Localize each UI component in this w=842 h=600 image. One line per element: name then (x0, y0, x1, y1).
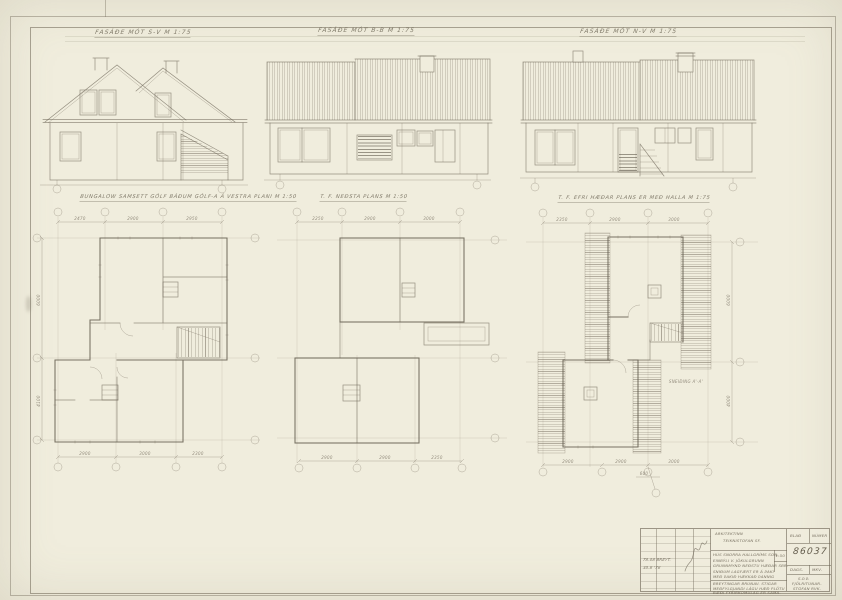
datum-markers (53, 180, 226, 193)
roof (265, 59, 492, 123)
fold-mark (105, 0, 106, 17)
footer-line: STOFAN RVK. (793, 586, 821, 591)
section-annotation: SNEIÐING A'-A' (669, 379, 703, 384)
grid-bubbles (293, 208, 499, 472)
dim-label: 2900 (79, 451, 91, 456)
elevation-sw-drawing (38, 52, 250, 197)
elevation-title-sw: FASÁÐE MÓT S-V M 1:75 (94, 29, 192, 38)
plan-title-foundation: T. F. NEÐSTA PLANS M 1:50 (319, 194, 408, 202)
interior-walls (55, 238, 227, 442)
note-line: BÆÐI FYRIRKOMULAG ER SAMA. (713, 590, 781, 595)
dim-label: 3000 (668, 459, 680, 464)
dim-label: 2900 (364, 216, 376, 221)
dim-label: 2900 (127, 216, 139, 221)
title-block-number-panel: BLAÐ NÚMER 86037 DAGS. MKV. S.Þ.Þ. FJÖLR… (787, 529, 831, 591)
description-line: HÚS SNORRA HALLGRÍMS SON. (713, 552, 779, 557)
dim-label: 2900 (379, 455, 391, 460)
stair (650, 323, 683, 342)
description-line: SNIÐUM LAGFÆRT ER Á ÞAKI (713, 569, 774, 574)
dim-label: 6000 (726, 294, 731, 306)
dim-label: 3000 (423, 216, 435, 221)
exterior-stair (181, 130, 228, 180)
chimneys (584, 285, 661, 400)
louvre-vent (358, 136, 391, 159)
number-label: NÚMER (812, 533, 827, 538)
grid-lines (277, 217, 507, 463)
revision-table-column (693, 529, 694, 591)
plan-title-upper: T. F. EFRI HÆÐAR PLANS ER MEÐ HALLA M 1:… (557, 195, 710, 203)
dim-label: 2350 (431, 455, 443, 460)
dim-label: 2300 (192, 451, 204, 456)
drawing-sheet: FASÁÐE MÓT S-V M 1:75 FASÁÐE MÓT B-B M 1… (0, 0, 842, 600)
exterior-walls (54, 237, 229, 444)
dim-label: 6000 (36, 294, 41, 306)
elevation-rear-drawing (518, 48, 758, 196)
elevation-front-drawing (262, 52, 492, 192)
house-walls (40, 120, 248, 186)
description-line: EINBÝLI V. JÖKULGRUNN (713, 558, 764, 563)
dimension-lines (295, 220, 464, 463)
roof-slope-outlines (538, 233, 711, 453)
grid-bubbles (33, 208, 259, 471)
plan-ground-floor-drawing: 2470 2900 2950 2900 3000 2300 6000 4100 (30, 205, 275, 490)
revision-entry: 78.08 BREYT. (643, 557, 672, 562)
entrance-steps (640, 144, 664, 176)
architect-line: ARKITEKTINN (715, 531, 743, 536)
chimney (418, 56, 436, 72)
divider (711, 580, 787, 581)
drawing-number: 86037 (792, 547, 828, 557)
elevation-title-rear: FASÁÐE MÓT N-V M 1:75 (579, 28, 677, 37)
datum-markers (531, 178, 737, 191)
divider (809, 529, 810, 543)
size-label: MKV. (812, 567, 822, 572)
datum-markers (276, 174, 481, 189)
description-line: MEÐ ÞAKIÐ HÆKKAÐ ÞANNIG (713, 574, 774, 579)
number-label: BLAÐ (790, 533, 801, 538)
ruling-line (65, 41, 805, 42)
grid-lines (526, 218, 758, 467)
dimension-lines (40, 220, 224, 459)
dim-label: 2950 (186, 216, 198, 221)
divider (711, 550, 787, 551)
dimension-lines (541, 221, 734, 489)
elevation-title-front: FASÁÐE MÓT B-B M 1:75 (317, 27, 415, 36)
description-line: GRUNNMYND NEÐSTU HÆÐAR SBR. (713, 563, 788, 568)
revision-table-column (675, 529, 676, 591)
dim-label: 4000 (726, 395, 731, 407)
dim-label: 2900 (321, 455, 333, 460)
gable-roof (45, 65, 235, 123)
door-panel (619, 154, 637, 171)
plan-foundation-drawing: 2250 2900 3000 2900 2900 2350 (272, 205, 517, 490)
dim-label: 4100 (36, 395, 41, 407)
dim-label: 3000 (139, 451, 151, 456)
divider (774, 561, 787, 562)
chimney (93, 58, 179, 73)
grid-bubbles (539, 209, 744, 497)
architect-line: TEIKNISTOFAN SF. (723, 538, 761, 543)
windows (60, 90, 176, 161)
dim-label: 2350 (556, 217, 568, 222)
chimney (573, 51, 695, 72)
revision-table: 78.08 BREYT. 30.8 '78 (641, 529, 711, 591)
dim-label: 2470 (74, 216, 86, 221)
stair (177, 327, 220, 358)
title-block: 78.08 BREYT. 30.8 '78 ARKITEKTINN TEIKNI… (640, 528, 830, 592)
title-block-description: ARKITEKTINN TEIKNISTOFAN SF. HÚS SNORRA … (711, 529, 787, 591)
divider (809, 565, 810, 574)
revision-entry: 30.8 '78 (643, 565, 661, 570)
dim-label: 2900 (615, 459, 627, 464)
plan-upper-floor-drawing: 2350 2900 3000 2900 2900 3000 6000 4000 … (518, 205, 773, 505)
divider (787, 574, 831, 575)
dim-label: 2900 (609, 217, 621, 222)
scale-value: 1:50 (776, 553, 786, 558)
roof (521, 60, 756, 123)
date-label: DAGS. (790, 567, 803, 572)
dim-label: 2900 (562, 459, 574, 464)
door-swings (90, 323, 133, 379)
divider (787, 543, 831, 544)
door-swings (613, 305, 640, 373)
dim-label: 2250 (312, 216, 324, 221)
dim-label: 3000 (668, 217, 680, 222)
